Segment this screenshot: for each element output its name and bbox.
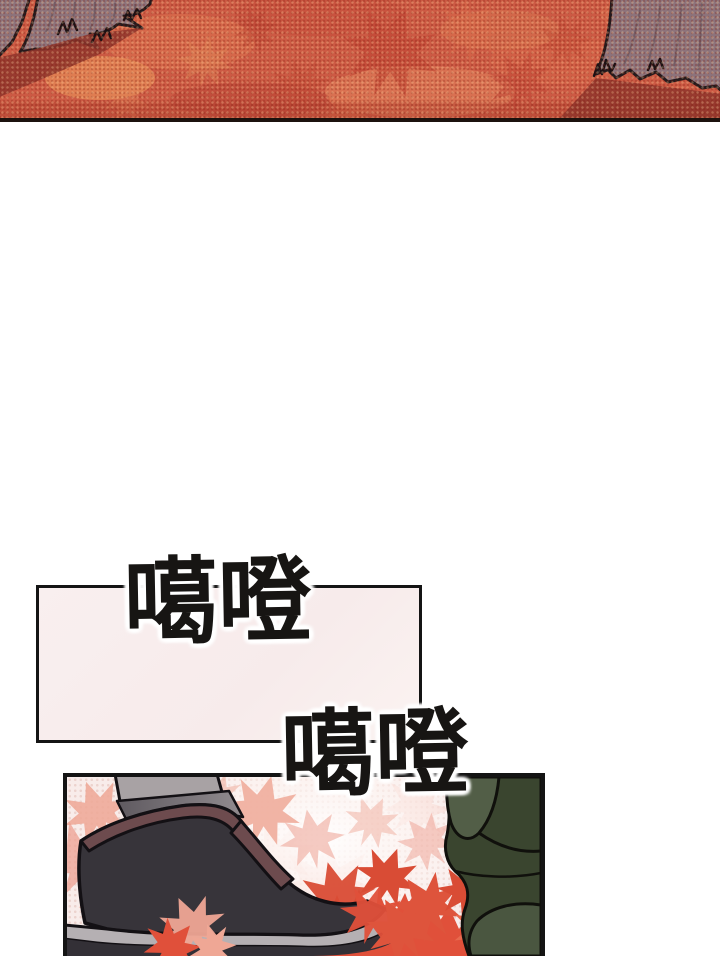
panel-forest-ground <box>0 0 720 122</box>
sfx-footstep-first: 噶噔 <box>123 554 313 651</box>
autumn-ground-art <box>0 0 720 118</box>
comic-page: 噶噔 噶噔 <box>0 0 720 956</box>
sfx-footstep-second: 噶噔 <box>280 706 470 803</box>
